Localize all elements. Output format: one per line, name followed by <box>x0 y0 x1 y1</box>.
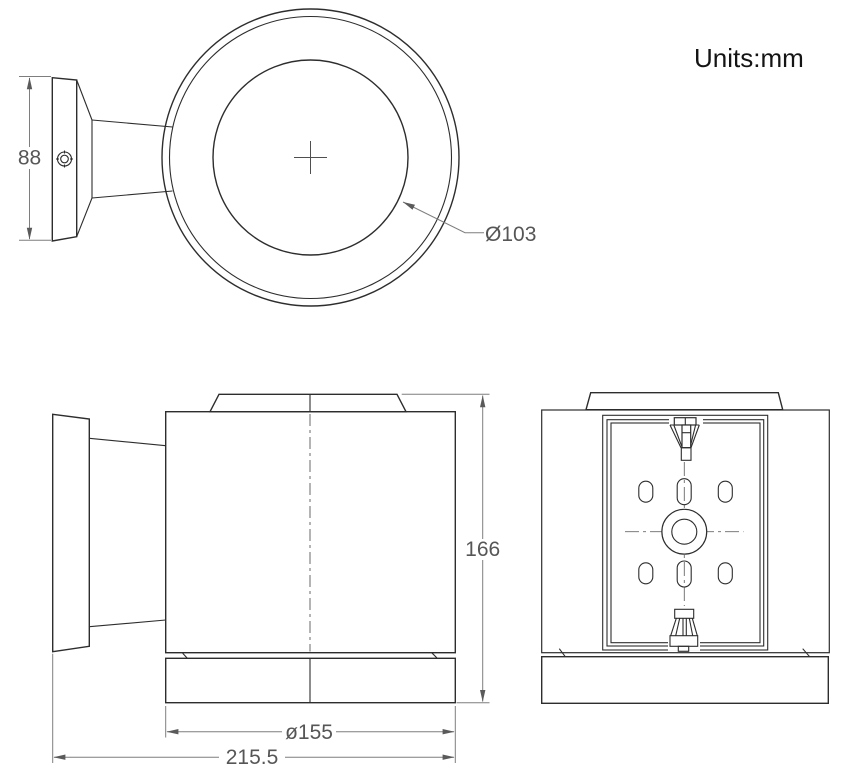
dim-canopy-height-label: 88 <box>18 147 41 170</box>
base-ring-rear <box>542 657 829 704</box>
dim-canopy-height: 88 <box>16 77 51 241</box>
technical-drawing-page: 88 Ø103 Units:mm 166 <box>0 0 864 783</box>
units-label: Units:mm <box>694 43 804 73</box>
top-cap-side <box>210 394 406 411</box>
dim-body-height: 166 <box>402 394 502 702</box>
wall-plate-top <box>52 78 76 241</box>
center-hole <box>662 509 707 554</box>
dim-body-diameter-label: ø155 <box>285 721 333 744</box>
dim-lens-diameter-label: Ø103 <box>485 223 536 246</box>
lamp-body-side <box>166 412 456 653</box>
canopy-top <box>52 78 172 241</box>
terminal-clip-bottom <box>668 609 700 652</box>
dim-lens-diameter: Ø103 <box>403 202 536 246</box>
wall-plate-side <box>53 414 90 651</box>
rear-view <box>542 393 830 704</box>
mounting-screw <box>56 151 73 168</box>
dim-overall-depth-label: 215.5 <box>226 746 279 769</box>
technical-drawing: 88 Ø103 Units:mm 166 <box>0 0 864 783</box>
center-cross <box>294 141 327 174</box>
terminal-clip-top <box>669 417 703 461</box>
dim-body-diameter: ø155 <box>166 706 456 763</box>
top-cap-rear <box>586 393 783 410</box>
side-view: 166 ø155 215.5 <box>53 394 502 769</box>
dim-body-height-label: 166 <box>465 538 500 561</box>
dim-overall-depth: 215.5 <box>53 654 455 769</box>
top-view: 88 Ø103 <box>16 9 536 306</box>
